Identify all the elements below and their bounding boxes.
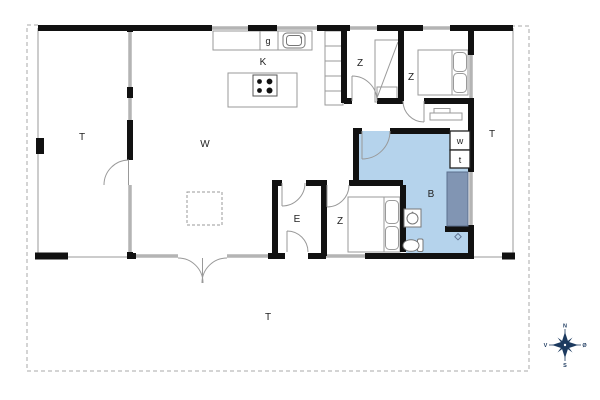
door-bedroom3	[327, 185, 349, 207]
label-terrace-south: T	[265, 312, 271, 323]
label-entry: E	[294, 214, 301, 225]
wardrobe	[325, 31, 343, 105]
compass-north: N	[563, 324, 567, 330]
terrace-pier-west	[36, 138, 44, 154]
kitchen-sink-icon	[283, 33, 305, 48]
toilet-icon	[403, 239, 423, 252]
compass-east: Ø	[582, 343, 587, 349]
shower-icon	[447, 172, 468, 226]
double-bed-icon-bedroom2	[418, 50, 468, 95]
double-bed-icon-bedroom3	[348, 197, 400, 252]
bunk-bed-icon	[375, 40, 400, 102]
door-terrace-west	[104, 160, 129, 185]
label-washer: w	[456, 136, 464, 146]
door-entry-exterior	[287, 231, 308, 252]
double-door-terrace-south	[178, 258, 227, 283]
compass-south: S	[563, 363, 567, 369]
hall-shelf	[430, 109, 462, 121]
compass-west: V	[544, 343, 548, 349]
label-living: W	[200, 139, 210, 150]
floor-plan: T W K g Z Z Z E B w t T T N Ø S V	[0, 0, 600, 400]
label-bedroom2: Z	[408, 72, 414, 83]
door-entry-interior	[282, 183, 305, 206]
label-bathroom: B	[428, 189, 435, 200]
compass-rose: N Ø S V	[544, 324, 588, 370]
label-cabinet: g	[265, 36, 270, 46]
label-kitchen: K	[260, 57, 267, 68]
skylight-dashed-marker	[187, 192, 222, 225]
door-bedroom1	[352, 76, 377, 101]
label-terrace-west: T	[79, 132, 85, 143]
cooktop-icon	[253, 75, 277, 96]
label-bedroom3: Z	[337, 216, 343, 227]
washbasin-icon	[404, 209, 421, 227]
label-terrace-east: T	[489, 129, 495, 140]
door-bedroom2	[403, 101, 424, 122]
label-bedroom1: Z	[357, 58, 363, 69]
